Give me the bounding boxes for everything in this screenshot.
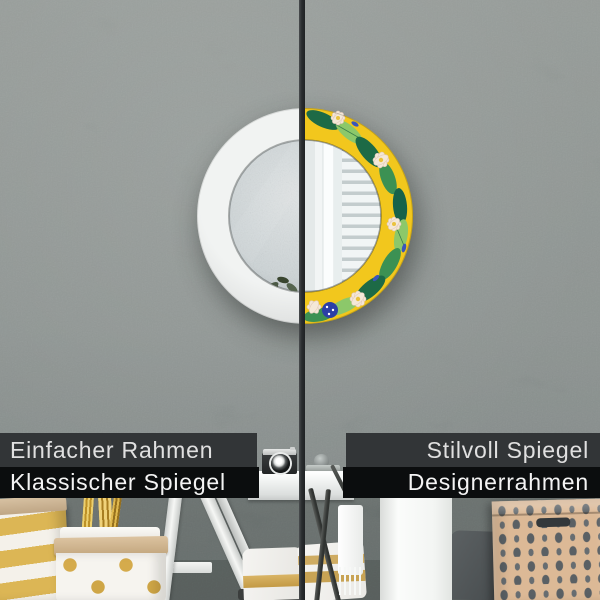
hanging-white-towel [380, 490, 452, 600]
camera-lens [271, 454, 290, 473]
throw-fringe [339, 567, 362, 595]
label-right-line1: Stilvoll Spiegel [427, 437, 589, 463]
label-bar-right-top: Stilvoll Spiegel [346, 433, 600, 467]
vintage-camera [262, 448, 297, 476]
comparison-split-divider [299, 0, 305, 600]
label-left-line2: Klassischer Spiegel [10, 469, 226, 495]
dark-gray-pillow [448, 530, 499, 600]
blue-flower-cluster [322, 302, 338, 318]
patterned-storage-box [492, 499, 600, 600]
fringed-throw [338, 505, 363, 575]
camera-knob [290, 447, 295, 450]
box-handle-cutout [536, 517, 570, 527]
bag-body [56, 553, 166, 600]
label-right-line2: Designerrahmen [408, 469, 589, 495]
polka-dot-paper-bag [54, 527, 168, 600]
label-bar-right-bottom: Designerrahmen [343, 467, 600, 498]
round-wall-mirror [197, 108, 413, 324]
product-photo-mirror-comparison: Einfacher Rahmen Klassischer Spiegel Sti… [0, 0, 600, 600]
label-left-line1: Einfacher Rahmen [10, 437, 213, 463]
label-bar-left-top: Einfacher Rahmen [0, 433, 257, 467]
label-bar-left-bottom: Klassischer Spiegel [0, 467, 259, 498]
box-lid-seam [492, 512, 600, 517]
gold-band [243, 574, 303, 588]
white-gold-pillow [242, 547, 304, 600]
